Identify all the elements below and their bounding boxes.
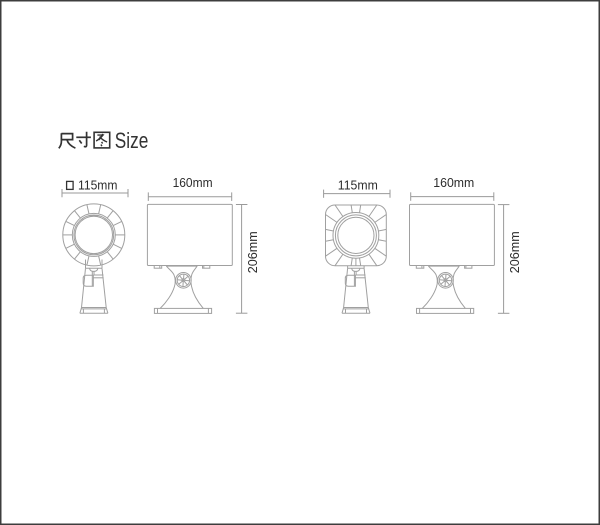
svg-text:206mm: 206mm	[246, 231, 260, 273]
svg-text:115mm: 115mm	[338, 178, 378, 192]
svg-text:206mm: 206mm	[508, 231, 522, 273]
svg-text:115mm: 115mm	[78, 179, 118, 193]
svg-text:160mm: 160mm	[433, 176, 474, 190]
svg-text:Size: Size	[115, 128, 149, 153]
svg-text:160mm: 160mm	[173, 176, 213, 190]
